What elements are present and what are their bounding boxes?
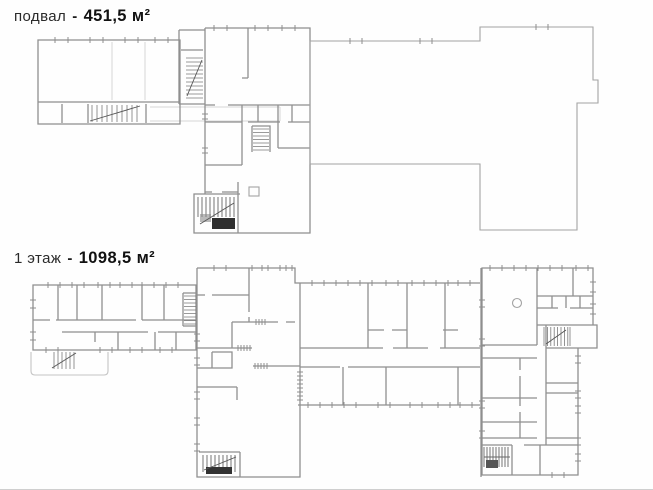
floor1-right-stair-arrow bbox=[546, 330, 566, 344]
floor1-connector-walls bbox=[298, 268, 481, 477]
floor1-window-ticks bbox=[30, 265, 596, 478]
floor1-door-hatch-ticks bbox=[238, 319, 267, 369]
floor1-left-wing-walls bbox=[33, 285, 196, 350]
basement-stair-dark-block bbox=[212, 218, 235, 229]
basement-shaft-symbol bbox=[249, 187, 259, 196]
basement-left-wing-walls bbox=[38, 40, 180, 124]
floor1-middle-wing-walls bbox=[183, 268, 480, 477]
floor1-right-wing-walls bbox=[482, 268, 597, 475]
basement-stair-strip-walls bbox=[179, 30, 205, 104]
basement-faint-lines bbox=[62, 42, 280, 121]
floor1-rightwing-stair-dark-block bbox=[486, 460, 498, 468]
first-floor-plan bbox=[30, 265, 597, 478]
floor1-entry-stair-arrow bbox=[52, 353, 76, 368]
basement-left-stair-arrow bbox=[90, 106, 140, 121]
floor1-entry-porch-outline bbox=[31, 352, 108, 375]
floorplan-sheet: подвал - 451,5 м² 1 этаж - 1098,5 м² bbox=[0, 0, 653, 490]
floor1-column-symbol bbox=[513, 299, 522, 308]
basement-small-stair-symbol bbox=[253, 129, 269, 150]
basement-plan bbox=[38, 24, 598, 233]
basement-middle-block-walls bbox=[194, 28, 310, 233]
basement-window-ticks bbox=[55, 24, 548, 153]
plans-drawing bbox=[0, 0, 653, 489]
basement-big-hall-outline bbox=[310, 27, 598, 230]
